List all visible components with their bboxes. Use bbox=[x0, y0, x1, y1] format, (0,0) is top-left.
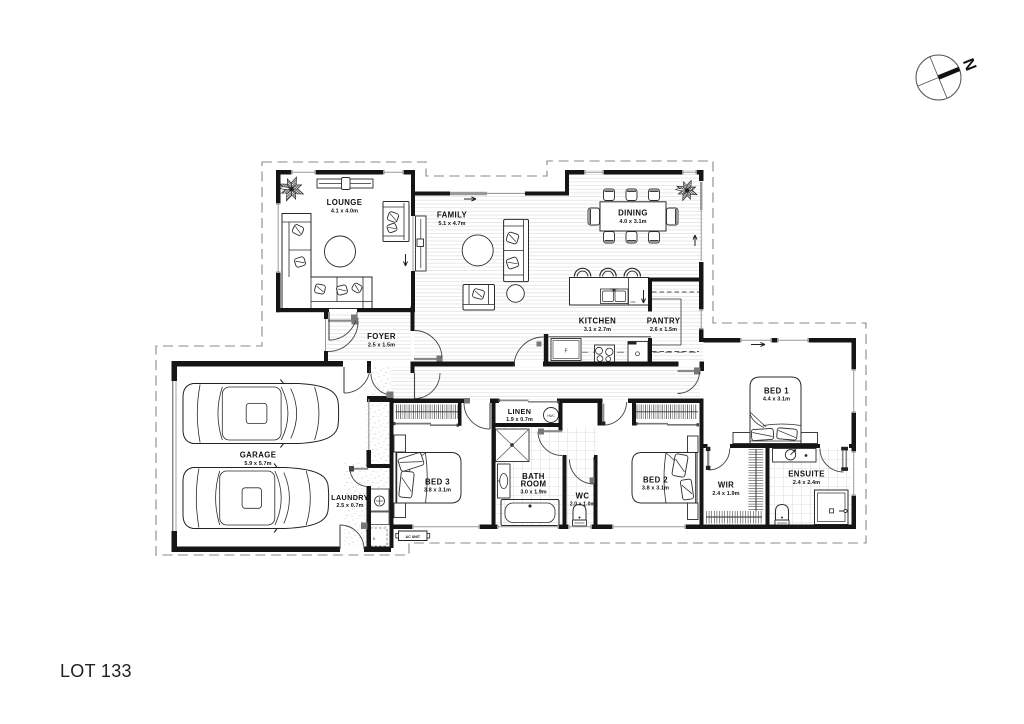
svg-text:KITCHEN: KITCHEN bbox=[579, 317, 616, 326]
svg-text:5.9 x 5.7m: 5.9 x 5.7m bbox=[244, 461, 271, 467]
svg-text:3.8 x 3.1m: 3.8 x 3.1m bbox=[424, 488, 451, 494]
svg-text:ROOM: ROOM bbox=[521, 480, 547, 489]
svg-text:BED 2: BED 2 bbox=[643, 476, 668, 485]
svg-text:2.6 x 1.5m: 2.6 x 1.5m bbox=[650, 327, 677, 333]
svg-text:4.4 x 3.1m: 4.4 x 3.1m bbox=[763, 397, 790, 403]
svg-text:F: F bbox=[564, 349, 567, 355]
svg-text:GARAGE: GARAGE bbox=[240, 451, 277, 460]
svg-text:3.8 x 3.1m: 3.8 x 3.1m bbox=[642, 486, 669, 492]
svg-text:4.0 x 3.1m: 4.0 x 3.1m bbox=[619, 219, 646, 225]
svg-text:WC: WC bbox=[576, 492, 590, 501]
svg-text:5.1 x 4.7m: 5.1 x 4.7m bbox=[438, 221, 465, 227]
svg-text:LAUNDRY: LAUNDRY bbox=[331, 493, 369, 502]
svg-text:FAMILY: FAMILY bbox=[437, 211, 468, 220]
svg-text:2.4 x 1.9m: 2.4 x 1.9m bbox=[712, 491, 739, 497]
svg-text:FOYER: FOYER bbox=[367, 332, 396, 341]
svg-text:BED 1: BED 1 bbox=[764, 387, 789, 396]
svg-text:3.0 x 1.9m: 3.0 x 1.9m bbox=[520, 490, 546, 496]
svg-text:DW: DW bbox=[631, 300, 636, 304]
svg-text:LINEN: LINEN bbox=[508, 407, 532, 416]
svg-text:2.0 x 1.0m: 2.0 x 1.0m bbox=[570, 501, 596, 507]
svg-text:BED 3: BED 3 bbox=[425, 478, 450, 487]
svg-text:4.1 x 4.0m: 4.1 x 4.0m bbox=[331, 209, 358, 215]
svg-text:ENSUITE: ENSUITE bbox=[788, 470, 825, 479]
svg-text:2.4 x 2.4m: 2.4 x 2.4m bbox=[793, 480, 820, 486]
svg-text:LOT 133: LOT 133 bbox=[60, 661, 132, 681]
svg-text:AC UNIT: AC UNIT bbox=[406, 535, 421, 539]
svg-text:HWC: HWC bbox=[547, 414, 555, 418]
svg-text:2.5 x 1.5m: 2.5 x 1.5m bbox=[368, 343, 395, 349]
svg-text:WIR: WIR bbox=[718, 481, 734, 490]
svg-text:DINING: DINING bbox=[618, 209, 648, 218]
svg-text:LOUNGE: LOUNGE bbox=[327, 198, 363, 207]
svg-text:1.9 x 0.7m: 1.9 x 0.7m bbox=[506, 417, 533, 423]
svg-text:2.5 x 0.7m: 2.5 x 0.7m bbox=[336, 503, 363, 509]
svg-text:3.1 x 2.7m: 3.1 x 2.7m bbox=[584, 327, 611, 333]
svg-text:PANTRY: PANTRY bbox=[647, 317, 681, 326]
